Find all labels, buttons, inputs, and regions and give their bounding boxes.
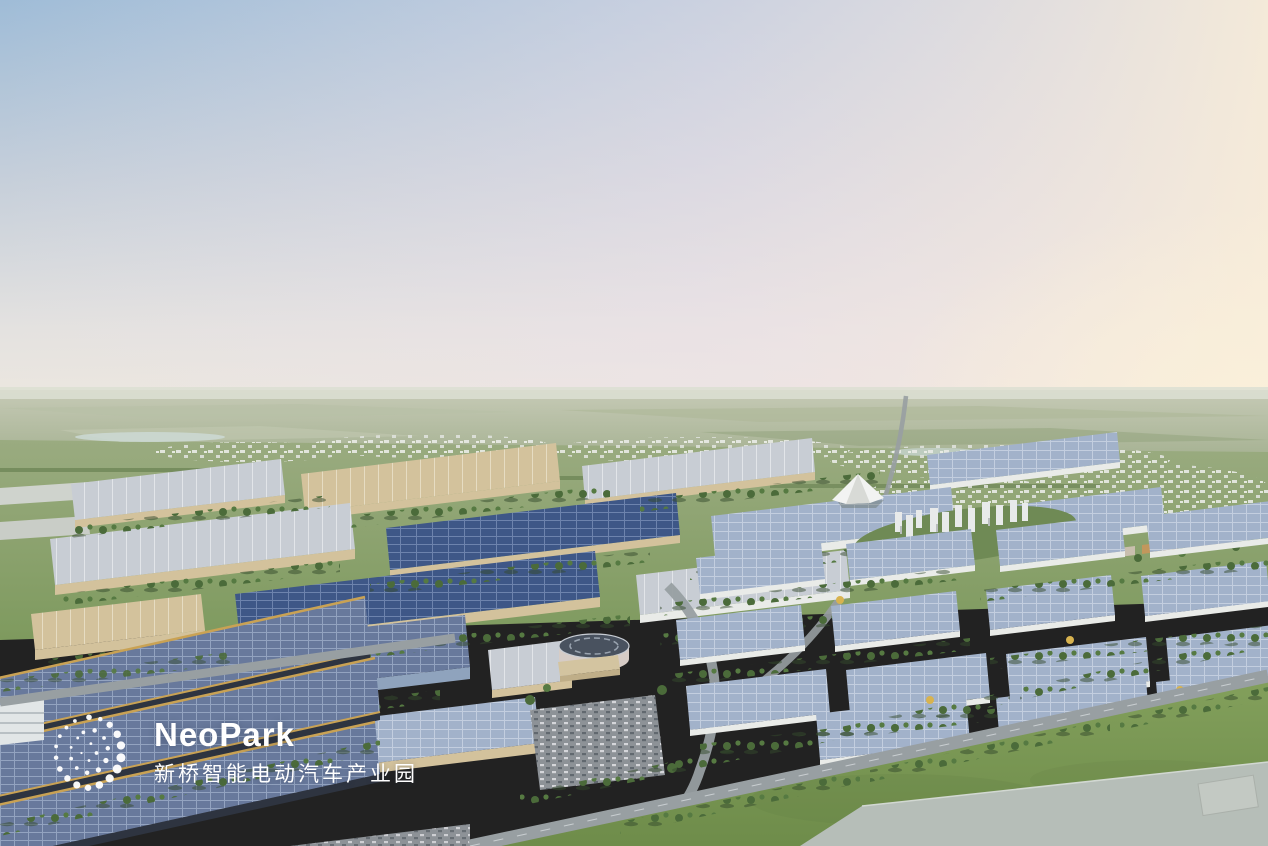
round-building: [558, 634, 629, 682]
dot-cluster-icon: [42, 706, 136, 800]
logo-chinese-subtitle: 新桥智能电动汽车产业园: [154, 758, 418, 788]
logo-wordmark: NeoPark: [154, 718, 418, 753]
neopark-logo: NeoPark 新桥智能电动汽车产业园: [42, 706, 418, 800]
rendering-canvas: NeoPark 新桥智能电动汽车产业园: [0, 0, 1268, 846]
